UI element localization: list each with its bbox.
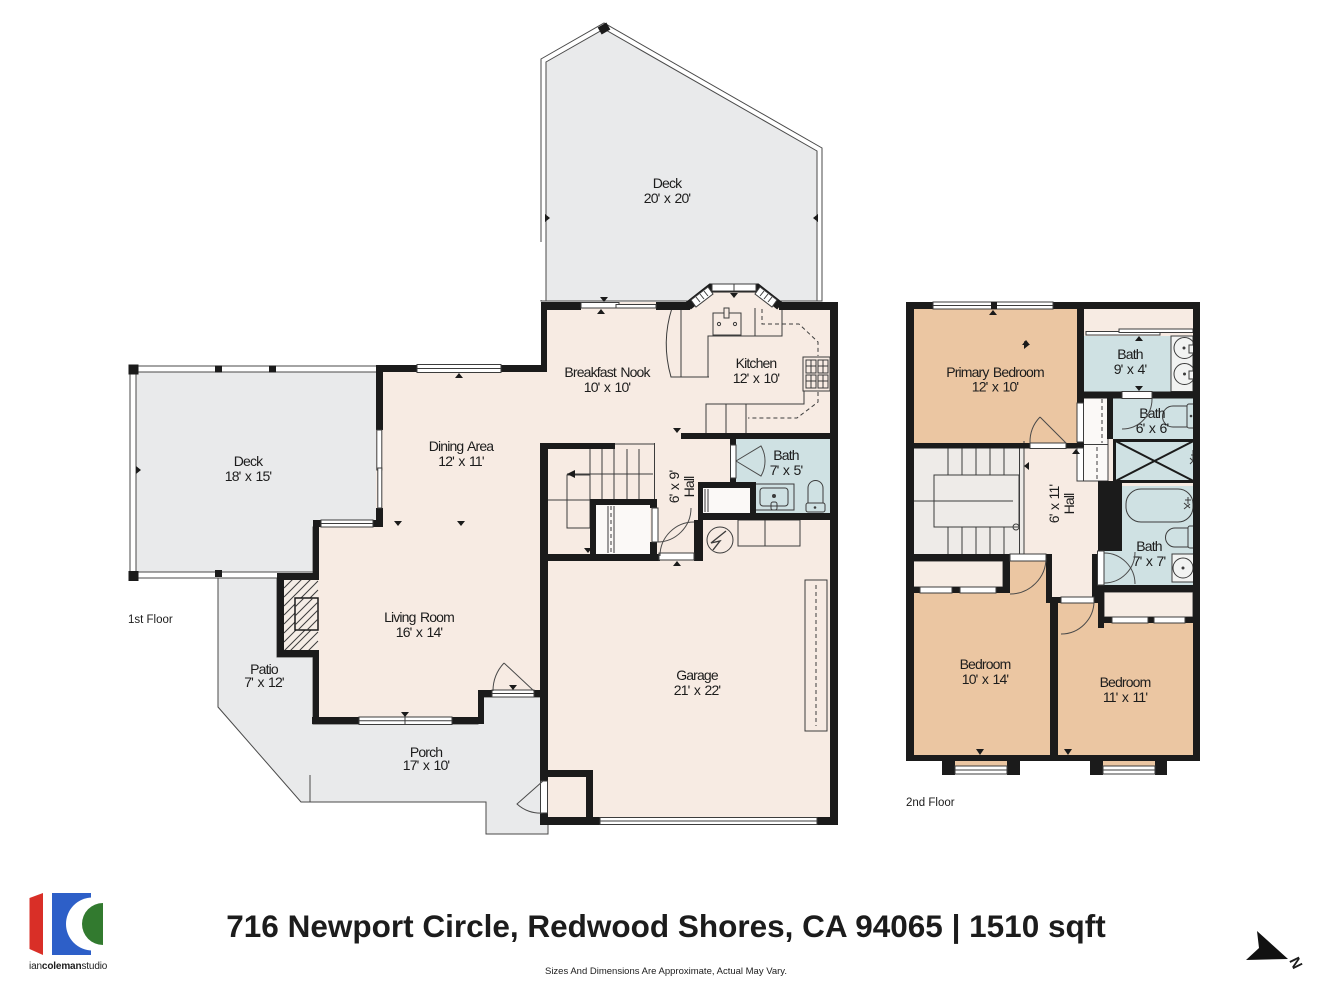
svg-text:Bath: Bath xyxy=(1117,346,1142,362)
svg-text:12' x 10': 12' x 10' xyxy=(972,379,1019,395)
svg-text:9' x 4': 9' x 4' xyxy=(1114,361,1147,377)
svg-text:7' x 12': 7' x 12' xyxy=(244,674,284,690)
svg-text:21' x 22': 21' x 22' xyxy=(674,682,721,698)
svg-text:7' x 5': 7' x 5' xyxy=(770,462,803,478)
svg-text:Bedroom: Bedroom xyxy=(1100,674,1151,690)
svg-text:Bath: Bath xyxy=(773,447,798,463)
svg-text:iancolemanstudio: iancolemanstudio xyxy=(29,961,108,972)
svg-text:Breakfast Nook: Breakfast Nook xyxy=(564,364,651,380)
svg-text:N: N xyxy=(1285,955,1305,972)
svg-text:2nd Floor: 2nd Floor xyxy=(906,797,955,809)
svg-text:7' x 7': 7' x 7' xyxy=(1133,553,1166,569)
svg-text:Hall: Hall xyxy=(1061,493,1077,514)
svg-text:Bath: Bath xyxy=(1139,405,1164,421)
svg-text:10' x 14': 10' x 14' xyxy=(962,671,1009,687)
svg-text:Deck: Deck xyxy=(234,453,264,469)
svg-text:Living Room: Living Room xyxy=(384,609,454,625)
svg-text:18' x 15': 18' x 15' xyxy=(225,468,272,484)
svg-text:20' x 20': 20' x 20' xyxy=(644,190,691,206)
svg-text:Hall: Hall xyxy=(681,476,697,497)
svg-text:Deck: Deck xyxy=(653,175,683,191)
svg-text:17' x 10': 17' x 10' xyxy=(403,757,450,773)
svg-text:1st Floor: 1st Floor xyxy=(128,614,173,626)
svg-text:Dining Area: Dining Area xyxy=(429,438,494,454)
svg-text:Bath: Bath xyxy=(1136,538,1161,554)
svg-text:12' x 10': 12' x 10' xyxy=(733,370,780,386)
svg-text:16' x 14': 16' x 14' xyxy=(396,624,443,640)
svg-text:11' x 11': 11' x 11' xyxy=(1103,689,1148,705)
svg-text:6' x 11': 6' x 11' xyxy=(1046,485,1062,524)
svg-text:6' x 9': 6' x 9' xyxy=(666,471,682,504)
svg-text:12' x 11': 12' x 11' xyxy=(438,453,484,469)
svg-text:Sizes And Dimensions Are Appro: Sizes And Dimensions Are Approximate, Ac… xyxy=(545,966,787,977)
svg-text:Kitchen: Kitchen xyxy=(736,355,777,371)
svg-text:Bedroom: Bedroom xyxy=(960,656,1011,672)
svg-text:10' x 10': 10' x 10' xyxy=(584,379,631,395)
svg-text:Garage: Garage xyxy=(676,667,719,683)
svg-text:716 Newport Circle, Redwood Sh: 716 Newport Circle, Redwood Shores, CA 9… xyxy=(226,908,1106,944)
